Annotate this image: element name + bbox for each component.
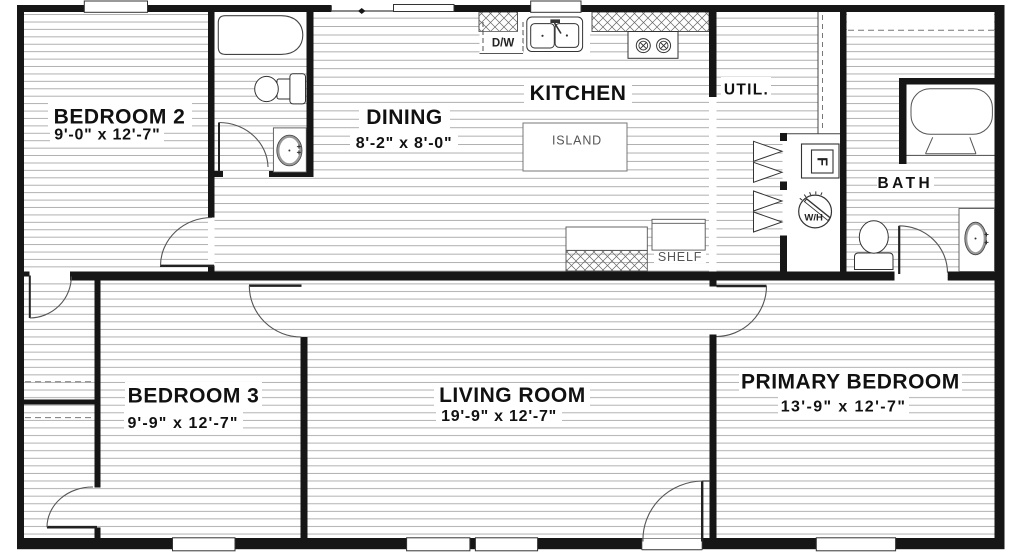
svg-text:F: F: [814, 157, 830, 166]
svg-text:9'-9" x 12'-7": 9'-9" x 12'-7": [127, 415, 238, 432]
svg-text:9'-0" x 12'-7": 9'-0" x 12'-7": [54, 127, 160, 144]
svg-text:LIVING ROOM: LIVING ROOM: [439, 384, 586, 407]
svg-text:BEDROOM 2: BEDROOM 2: [54, 106, 186, 129]
svg-text:8'-2" x 8'-0": 8'-2" x 8'-0": [356, 135, 453, 152]
svg-text:19'-9" x 12'-7": 19'-9" x 12'-7": [441, 408, 557, 425]
svg-text:W/H: W/H: [804, 213, 823, 224]
svg-text:SHELF: SHELF: [658, 250, 702, 264]
svg-text:KITCHEN: KITCHEN: [530, 82, 627, 105]
svg-text:UTIL.: UTIL.: [724, 82, 769, 99]
svg-text:BEDROOM 3: BEDROOM 3: [128, 385, 260, 408]
svg-text:BATH: BATH: [878, 175, 934, 192]
svg-text:13'-9" x 12'-7": 13'-9" x 12'-7": [781, 399, 907, 416]
svg-text:D/W: D/W: [492, 38, 515, 50]
svg-text:DINING: DINING: [366, 106, 443, 129]
svg-text:ISLAND: ISLAND: [552, 134, 602, 148]
svg-text:PRIMARY BEDROOM: PRIMARY BEDROOM: [741, 371, 960, 394]
